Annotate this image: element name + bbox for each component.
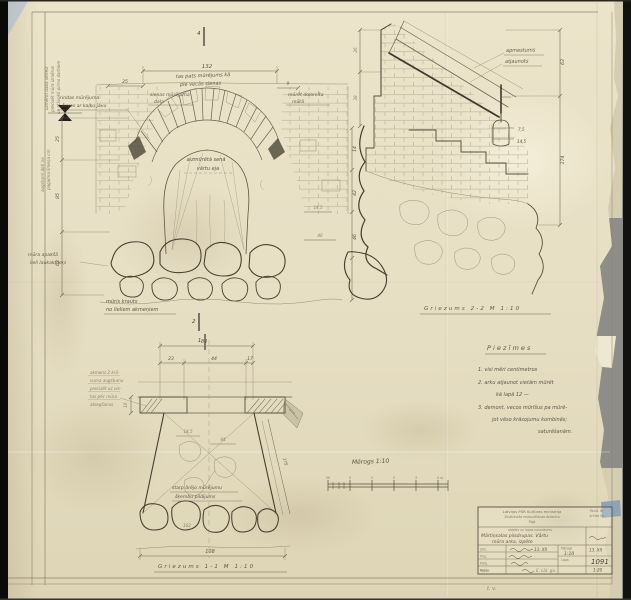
- dim-label: 102: [183, 523, 191, 528]
- arch-label: mūrēt dolomīta: [288, 92, 324, 98]
- object-title: mūra arka, izpēte: [492, 539, 533, 545]
- dim-label: 14: [352, 146, 358, 152]
- row-label: Pārb.: [480, 562, 488, 566]
- scale-tick-label: 3: [415, 476, 417, 480]
- scanner-bar-right: [623, 0, 631, 600]
- svg-text:precizēt uz vie-: precizēt uz vie-: [89, 386, 122, 391]
- scale-value: 1:10: [564, 551, 574, 557]
- opening-label: aizmūrētā senā: [187, 157, 226, 163]
- row-label: Zīm.: [480, 548, 487, 552]
- dim-label: 17: [247, 356, 253, 362]
- margin-note-line: precizēt mūra izmērus: [50, 65, 55, 113]
- dim-label: 40: [317, 233, 323, 238]
- fill-note: šķembu pildījums: [175, 493, 216, 500]
- dim-label: 14,5: [313, 205, 323, 210]
- dim-label: 132: [202, 64, 213, 70]
- note-line: 1. visi mēri centimetros: [478, 367, 538, 373]
- date-entry: 13. XII: [534, 547, 548, 552]
- dim-label: 46: [352, 234, 358, 240]
- org-name: Zinātniskās restaurēšanas darbnīca: [504, 515, 559, 519]
- copy-value: E. Līd. ga.: [536, 568, 556, 573]
- arch-label: šuves ar kaļķu javu: [62, 102, 106, 109]
- stair-label: atjaunots: [505, 59, 529, 65]
- sheet-number: 1091: [591, 558, 609, 566]
- dim-label: 174: [560, 156, 566, 165]
- dim-label: 63: [560, 59, 566, 65]
- arch-label: daļa: [154, 99, 164, 105]
- dim-label: 44: [220, 437, 226, 442]
- svg-text:akmens 2 krā-: akmens 2 krā-: [90, 370, 120, 375]
- notes-heading: Piezīmes: [487, 344, 532, 352]
- note-line: kā lapā 12 —: [496, 392, 529, 398]
- dim-label: 84: [201, 339, 207, 345]
- copy-label: Kopija: [480, 569, 489, 573]
- scanner-bar-left: [0, 0, 8, 600]
- drawing-canvas: uzmērot dabā vēlreiz precizēt mūra izmēr…: [0, 0, 631, 600]
- arch-label: mūra apakšā: [28, 251, 58, 258]
- stair-caption: Griezums 2-2 M 1:10: [424, 306, 521, 312]
- scale-label: Mērogs: [561, 547, 573, 551]
- arch-label: lieli laukakmeņi: [30, 260, 67, 266]
- dim-label: 38: [353, 95, 358, 101]
- arch-caption: mūris krauts: [106, 299, 138, 305]
- dim-label: 42: [352, 190, 358, 196]
- title-block: Latvijas PSR Kultūras ministrija Zinātni…: [478, 507, 612, 574]
- org-name: Rīgā: [529, 520, 536, 524]
- note-line: 2. arku atjaunot vietām mūrēt: [478, 380, 555, 386]
- margin-note-line: augstumi doti no: [40, 157, 45, 192]
- note-line: jot vēso krāsojumu kombinēs;: [491, 417, 567, 423]
- alt-scale: 1:20: [593, 568, 603, 573]
- svg-text:atsegšanas: atsegšanas: [90, 402, 114, 407]
- arch-label: sienas mūrējuma: [150, 92, 190, 98]
- margin-note-line: pagalma līmeņa cm: [46, 149, 51, 191]
- dim-label: 26: [353, 47, 358, 53]
- object-caption: objekts un lapas nosaukums: [508, 528, 552, 532]
- fill-note: starp ārējo mūrējumu: [172, 485, 222, 491]
- section-mark-label: 2: [192, 319, 196, 325]
- row-label: Proj.: [480, 555, 487, 559]
- corner-label: Arhīva Nr.: [589, 514, 604, 518]
- dim-label: 108: [205, 549, 215, 555]
- note-below-title-block: t. v.: [487, 586, 496, 592]
- opening-label: vārtu eja: [197, 166, 219, 172]
- sheet-label: Lapa: [561, 558, 569, 562]
- corner-label: Pasūt. Nr.: [590, 509, 605, 513]
- dim-label: 7,5: [518, 127, 525, 132]
- arch-label: rindas mūrējuma: [60, 95, 99, 101]
- dim-label: 44: [211, 356, 217, 362]
- note-line: 3. demont. vecos mūrīšus pa mūrē-: [478, 404, 567, 411]
- scale-tick-label: 1: [371, 476, 373, 480]
- arch-caption: no lieliem akmeņiem: [106, 307, 159, 313]
- arch-label: mūrā: [292, 99, 304, 105]
- dim-label: 14,5: [517, 139, 527, 144]
- org-name: Latvijas PSR Kultūras ministrija: [503, 509, 562, 514]
- section-mark-label: 4: [197, 31, 201, 37]
- svg-text:vuma augstumu: vuma augstumu: [90, 378, 124, 383]
- note-line: saturēšanām.: [538, 428, 572, 435]
- object-title: Mārtiņsalas pilsdrupas. Vārtu: [481, 533, 548, 539]
- footing-caption: Griezums 1-1 M 1:10: [158, 564, 255, 570]
- scale-tick-label: 50: [326, 476, 331, 480]
- scale-tick-label: 4 m: [437, 476, 444, 480]
- scale-bar-label: Mērogs 1:10: [352, 458, 390, 466]
- scanned-drawing-sheet: uzmērot dabā vēlreiz precizēt mūra izmēr…: [0, 0, 631, 600]
- dim-label: 25: [55, 136, 61, 142]
- dim-label: 16: [123, 402, 128, 408]
- dim-label: 23: [168, 356, 174, 362]
- stair-label: apmestums: [506, 47, 536, 54]
- dim-label: 85: [55, 193, 61, 199]
- margin-note-line: uzmērot dabā vēlreiz: [44, 66, 49, 110]
- date-entry: 13. XII: [589, 548, 603, 553]
- svg-text:tas pēc mūra: tas pēc mūra: [90, 394, 117, 399]
